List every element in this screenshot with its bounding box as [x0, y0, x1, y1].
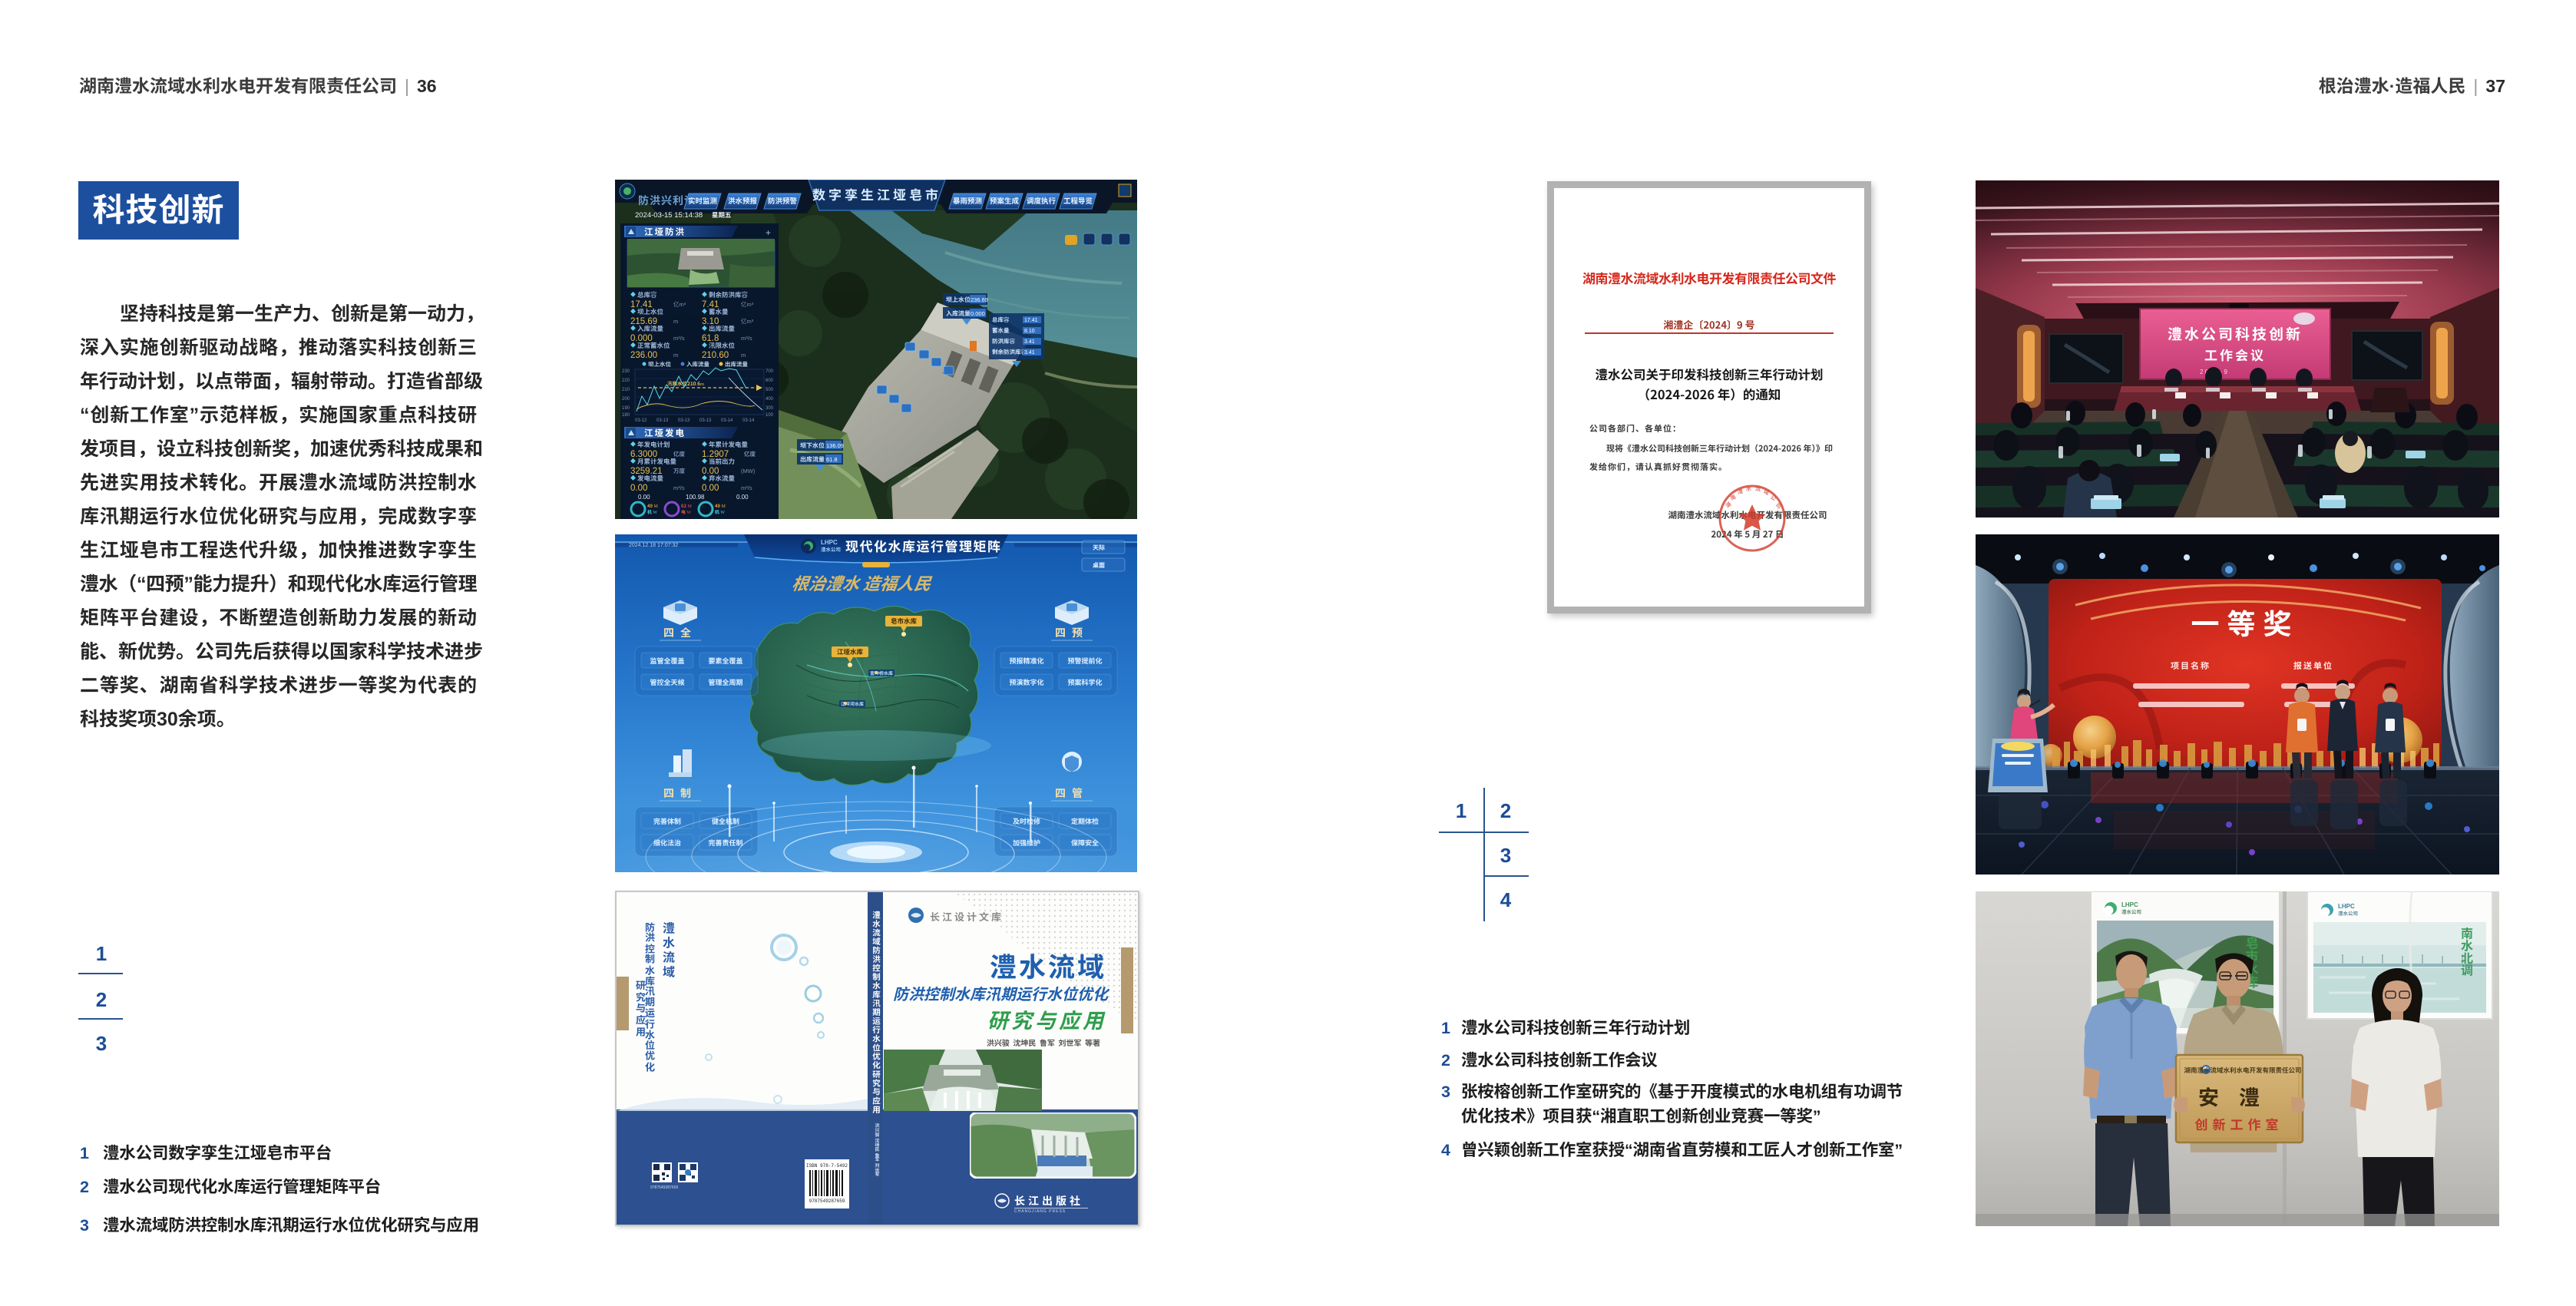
svg-text:项目名称: 项目名称 — [2171, 660, 2211, 672]
svg-text:司: 司 — [1774, 501, 1783, 511]
svg-text:创新工作室: 创新工作室 — [2195, 1114, 2283, 1133]
svg-text:年累计发电量: 年累计发电量 — [709, 440, 749, 449]
svg-text:数字孪生江垭皂市: 数字孪生江垭皂市 — [812, 184, 941, 203]
svg-text:600: 600 — [766, 379, 774, 383]
svg-text:洪水预报: 洪水预报 — [728, 195, 758, 206]
svg-text:江垭发电: 江垭发电 — [644, 427, 686, 439]
svg-text:四预: 四预 — [1055, 625, 1089, 640]
svg-text:ISBN 978-7-5492: ISBN 978-7-5492 — [806, 1163, 848, 1169]
svg-text:236.69: 236.69 — [971, 296, 988, 303]
svg-text:入库流量: 入库流量 — [946, 309, 971, 318]
svg-text:澧: 澧 — [1737, 488, 1744, 496]
svg-text:监管全覆盖: 监管全覆盖 — [650, 656, 684, 666]
svg-text:调度执行: 调度执行 — [1027, 195, 1057, 206]
svg-text:湖南澧水流域水利水电开发有限责任公司: 湖南澧水流域水利水电开发有限责任公司 — [2184, 1066, 2301, 1075]
svg-text:17.41: 17.41 — [1024, 318, 1038, 323]
svg-text:澧水公司科技创新: 澧水公司科技创新 — [2168, 323, 2303, 344]
svg-text:预案科学化: 预案科学化 — [1067, 677, 1102, 687]
svg-text:3259.21: 3259.21 — [630, 467, 663, 476]
svg-text:m³/s: m³/s — [741, 335, 752, 342]
svg-text:180: 180 — [622, 413, 630, 418]
svg-text:0.000: 0.000 — [971, 310, 985, 317]
svg-text:61.8: 61.8 — [702, 334, 719, 343]
svg-text:100.98: 100.98 — [686, 494, 705, 501]
svg-text:230: 230 — [622, 369, 630, 374]
svg-text:m: m — [741, 352, 746, 359]
svg-text:0.000: 0.000 — [630, 334, 653, 343]
svg-text:总库容: 总库容 — [992, 316, 1010, 324]
svg-text:健全机制: 健全机制 — [712, 816, 739, 826]
svg-text:坝上水位: 坝上水位 — [946, 296, 971, 304]
svg-text:机 W: 机 W — [715, 508, 725, 515]
svg-text:桌面: 桌面 — [1093, 561, 1105, 570]
svg-text:190: 190 — [622, 406, 630, 411]
svg-text:◆: ◆ — [630, 441, 636, 448]
svg-text:安澧: 安澧 — [2198, 1081, 2280, 1111]
svg-text:南水北调: 南水北调 — [2458, 927, 2476, 977]
svg-text:汛限水位210.6m: 汛限水位210.6m — [667, 379, 704, 387]
svg-text:预警提前化: 预警提前化 — [1067, 656, 1102, 666]
svg-text:03-14: 03-14 — [721, 418, 733, 423]
svg-text:年发电计划: 年发电计划 — [637, 440, 670, 449]
svg-text:03-14: 03-14 — [742, 418, 755, 423]
svg-text:0.00: 0.00 — [638, 494, 650, 501]
svg-text:100: 100 — [766, 413, 774, 418]
svg-text:预演数字化: 预演数字化 — [1009, 677, 1043, 687]
svg-text:亿m³: 亿m³ — [741, 300, 754, 308]
svg-text:报送单位: 报送单位 — [2293, 660, 2333, 672]
svg-text:管控全天候: 管控全天候 — [650, 677, 684, 687]
svg-text:亿度: 亿度 — [673, 450, 685, 458]
svg-text:236.00: 236.00 — [630, 351, 657, 360]
svg-text:工程导览: 工程导览 — [1063, 195, 1093, 206]
svg-text:剩余防洪库容: 剩余防洪库容 — [992, 348, 1027, 356]
svg-text:暴雨预测: 暴雨预测 — [953, 195, 982, 206]
svg-text:0.00: 0.00 — [702, 484, 719, 493]
svg-text:防洪预警: 防洪预警 — [768, 195, 798, 206]
svg-text:蓄水量: 蓄水量 — [992, 326, 1010, 335]
svg-text:四管: 四管 — [1055, 785, 1089, 801]
svg-text:3.41: 3.41 — [1024, 339, 1035, 345]
svg-text:剩余防洪库容: 剩余防洪库容 — [709, 290, 749, 299]
svg-text:加强维护: 加强维护 — [1013, 838, 1040, 848]
svg-text:400: 400 — [766, 397, 774, 402]
svg-text:根治澧水 造福人民: 根治澧水 造福人民 — [790, 570, 934, 595]
svg-text:210: 210 — [622, 388, 630, 392]
svg-text:17.41: 17.41 — [630, 300, 653, 309]
svg-text:出库流量: 出库流量 — [800, 455, 825, 464]
svg-text:天际: 天际 — [1093, 544, 1105, 552]
svg-text:坝上水位: 坝上水位 — [648, 360, 671, 369]
svg-text:江垭防洪: 江垭防洪 — [644, 226, 686, 238]
svg-text:61.8: 61.8 — [826, 456, 838, 463]
svg-text:+: + — [766, 227, 771, 238]
svg-text:3.41: 3.41 — [1024, 350, 1035, 355]
svg-text:亿m³: 亿m³ — [673, 300, 686, 308]
svg-text:完善体制: 完善体制 — [653, 816, 681, 826]
svg-text:南: 南 — [1729, 493, 1738, 502]
svg-text:2024.12.18 17:07:32: 2024.12.18 17:07:32 — [629, 543, 678, 548]
svg-text:工作会议: 工作会议 — [2204, 345, 2266, 364]
svg-text:500: 500 — [766, 388, 774, 392]
svg-text:预报精准化: 预报精准化 — [1009, 656, 1043, 666]
svg-text:入库流量: 入库流量 — [686, 360, 709, 369]
svg-text:0.00: 0.00 — [702, 467, 719, 476]
svg-text:(MW): (MW) — [741, 468, 756, 474]
svg-text:◆: ◆ — [630, 291, 636, 299]
svg-text:m: m — [673, 318, 678, 325]
svg-text:3.10: 3.10 — [702, 317, 719, 326]
svg-text:要素全覆盖: 要素全覆盖 — [708, 656, 742, 666]
svg-text:澧水公司: 澧水公司 — [2338, 909, 2358, 917]
svg-text:管理全周期: 管理全周期 — [708, 677, 742, 687]
svg-text:◆: ◆ — [702, 441, 707, 448]
svg-text:澧水公司: 澧水公司 — [2121, 908, 2141, 915]
svg-text:7.41: 7.41 — [702, 300, 719, 309]
svg-text:实时监测: 实时监测 — [688, 195, 717, 206]
svg-text:2024-03-15 15:14:38: 2024-03-15 15:14:38 — [635, 211, 703, 220]
svg-text:万度: 万度 — [673, 467, 685, 475]
svg-text:域: 域 — [1762, 488, 1770, 498]
svg-text:03-13: 03-13 — [699, 418, 712, 423]
svg-text:220: 220 — [622, 379, 630, 383]
svg-text:流: 流 — [1754, 485, 1761, 494]
svg-text:总库容: 总库容 — [637, 290, 657, 299]
svg-text:700: 700 — [766, 369, 774, 374]
svg-text:四全: 四全 — [663, 625, 697, 640]
svg-text:m³/s: m³/s — [741, 484, 752, 491]
svg-text:公: 公 — [1769, 494, 1777, 503]
svg-text:及时检修: 及时检修 — [1013, 816, 1040, 826]
svg-text:水: 水 — [1746, 485, 1751, 493]
svg-text:1.2907: 1.2907 — [702, 450, 729, 459]
svg-text:皂市水库: 皂市水库 — [891, 617, 918, 626]
svg-text:出库流量: 出库流量 — [725, 360, 748, 369]
svg-text:215.69: 215.69 — [630, 317, 657, 326]
svg-text:210.60: 210.60 — [702, 351, 729, 360]
svg-text:一等奖: 一等奖 — [2191, 601, 2300, 643]
svg-text:电 W: 电 W — [681, 508, 691, 515]
svg-text:8.10: 8.10 — [1024, 329, 1035, 334]
svg-text:m³/s: m³/s — [673, 335, 685, 342]
svg-text:03-13: 03-13 — [656, 418, 669, 423]
svg-text:9787549287659: 9787549287659 — [809, 1199, 845, 1204]
svg-text:防洪库容: 防洪库容 — [992, 337, 1015, 346]
svg-text:m³/s: m³/s — [673, 484, 685, 491]
svg-text:江垭水库: 江垭水库 — [837, 647, 864, 656]
svg-text:四制: 四制 — [663, 785, 697, 801]
svg-text:现代化水库运行管理矩阵: 现代化水库运行管理矩阵 — [845, 536, 1002, 555]
svg-text:亿m³: 亿m³ — [741, 317, 754, 325]
svg-text:03-13: 03-13 — [678, 418, 690, 423]
svg-text:宜冲桥水库: 宜冲桥水库 — [870, 670, 893, 676]
svg-text:机 W: 机 W — [647, 508, 657, 515]
svg-text:预案生成: 预案生成 — [990, 195, 1020, 206]
svg-text:亿度: 亿度 — [744, 450, 756, 458]
svg-text:136.09: 136.09 — [826, 442, 844, 449]
svg-text:完善责任制: 完善责任制 — [708, 838, 742, 848]
svg-text:200: 200 — [622, 397, 630, 402]
svg-text:星期五: 星期五 — [712, 210, 732, 220]
svg-text:坝下水位: 坝下水位 — [800, 441, 825, 450]
svg-text:6.3000: 6.3000 — [630, 450, 657, 459]
svg-text:澧水公司: 澧水公司 — [821, 545, 841, 553]
svg-text:定期体检: 定期体检 — [1071, 816, 1099, 826]
svg-text:300: 300 — [766, 406, 774, 411]
svg-text:03-12: 03-12 — [635, 418, 647, 423]
svg-text:◆: ◆ — [702, 291, 707, 299]
svg-text:0.00: 0.00 — [630, 484, 647, 493]
svg-text:m: m — [673, 352, 678, 359]
svg-text:0.00: 0.00 — [736, 494, 749, 501]
